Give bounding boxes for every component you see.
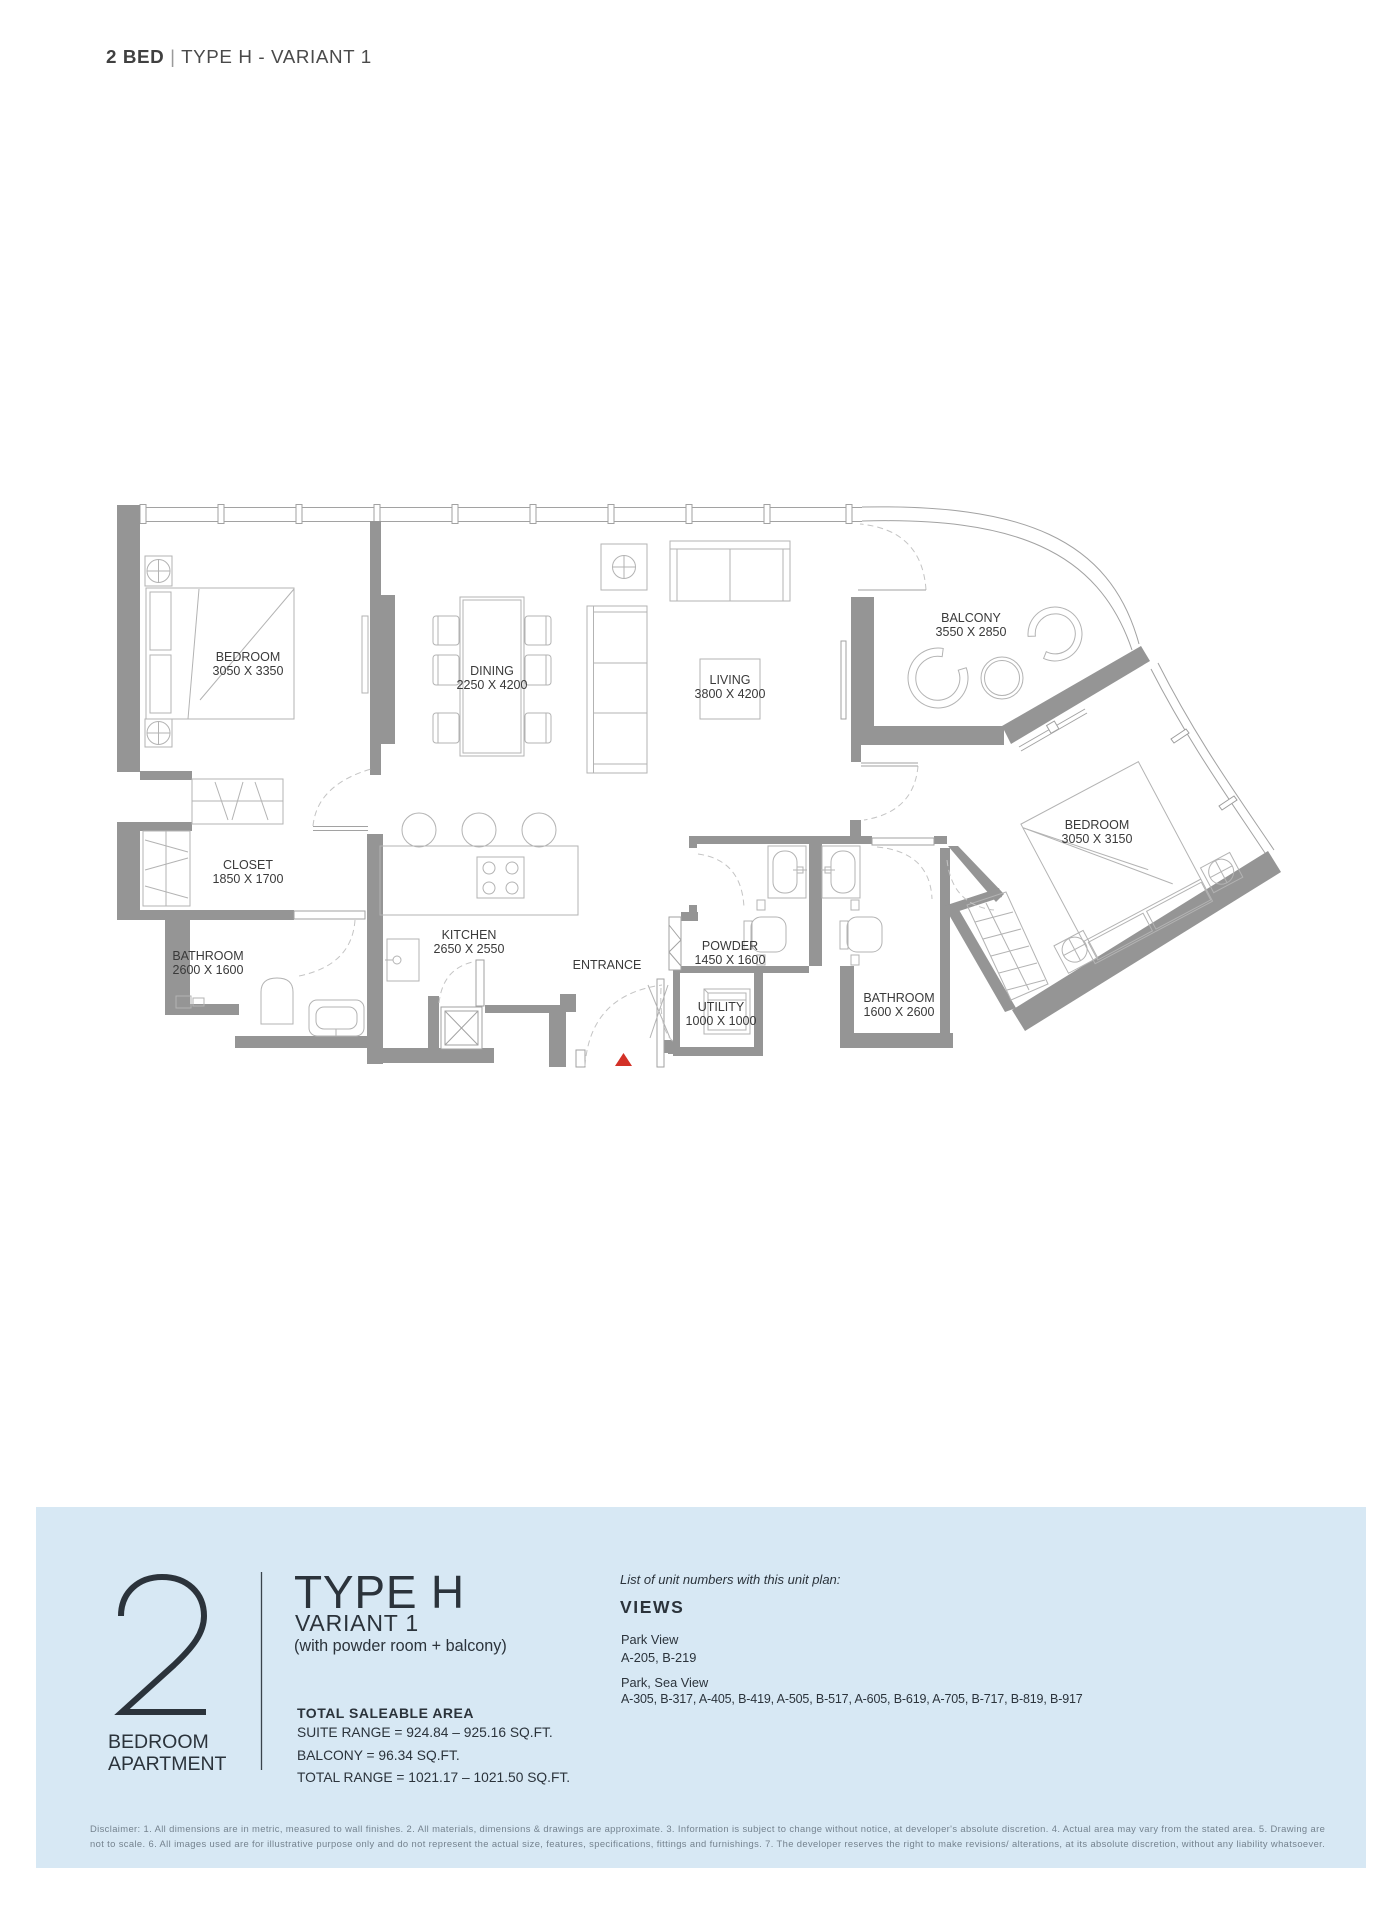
svg-text:VIEWS: VIEWS bbox=[620, 1597, 684, 1617]
svg-text:BALCONY = 96.34 SQ.FT.: BALCONY = 96.34 SQ.FT. bbox=[297, 1748, 460, 1763]
svg-text:3550 X 2850: 3550 X 2850 bbox=[936, 625, 1007, 639]
svg-text:List of unit numbers with this: List of unit numbers with this unit plan… bbox=[620, 1572, 841, 1587]
svg-text:UTILITY: UTILITY bbox=[698, 1000, 745, 1014]
svg-text:Disclaimer: 1. All dimensions: Disclaimer: 1. All dimensions are in met… bbox=[90, 1823, 1325, 1834]
svg-text:LIVING: LIVING bbox=[710, 673, 751, 687]
svg-text:1600 X 2600: 1600 X 2600 bbox=[864, 1005, 935, 1019]
svg-text:Park View: Park View bbox=[621, 1632, 679, 1647]
svg-text:BATHROOM: BATHROOM bbox=[172, 949, 243, 963]
svg-text:A-205, B-219: A-205, B-219 bbox=[621, 1650, 696, 1665]
svg-text:(with powder room + balcony): (with powder room + balcony) bbox=[294, 1637, 507, 1655]
svg-text:3800 X 4200: 3800 X 4200 bbox=[695, 687, 766, 701]
svg-text:ENTRANCE: ENTRANCE bbox=[573, 958, 642, 972]
svg-text:TOTAL SALEABLE AREA: TOTAL SALEABLE AREA bbox=[297, 1705, 474, 1721]
svg-text:BEDROOM: BEDROOM bbox=[216, 650, 281, 664]
svg-text:2650 X 2550: 2650 X 2550 bbox=[434, 942, 505, 956]
svg-text:3050 X 3350: 3050 X 3350 bbox=[213, 664, 284, 678]
svg-text:TOTAL RANGE = 1021.17 – 1021.5: TOTAL RANGE = 1021.17 – 1021.50 SQ.FT. bbox=[297, 1770, 570, 1785]
svg-text:not to scale. 6. All images us: not to scale. 6. All images used are for… bbox=[90, 1838, 1325, 1849]
svg-text:BEDROOM: BEDROOM bbox=[108, 1731, 209, 1753]
svg-text:VARIANT 1: VARIANT 1 bbox=[295, 1610, 419, 1636]
svg-text:POWDER: POWDER bbox=[702, 939, 758, 953]
svg-text:KITCHEN: KITCHEN bbox=[442, 928, 497, 942]
svg-text:3050 X 3150: 3050 X 3150 bbox=[1062, 832, 1133, 846]
svg-text:SUITE RANGE = 924.84 – 925.16: SUITE RANGE = 924.84 – 925.16 SQ.FT. bbox=[297, 1725, 553, 1740]
svg-text:1850 X 1700: 1850 X 1700 bbox=[213, 872, 284, 886]
svg-text:Park, Sea View: Park, Sea View bbox=[621, 1675, 709, 1690]
svg-text:2 BED | TYPE H - VARIANT 1: 2 BED | TYPE H - VARIANT 1 bbox=[106, 46, 372, 67]
svg-text:2250 X 4200: 2250 X 4200 bbox=[457, 678, 528, 692]
svg-text:BALCONY: BALCONY bbox=[941, 611, 1001, 625]
svg-text:A-305, B-317, A-405, B-419, A-: A-305, B-317, A-405, B-419, A-505, B-517… bbox=[621, 1692, 1083, 1706]
svg-text:1450 X 1600: 1450 X 1600 bbox=[695, 953, 766, 967]
svg-text:DINING: DINING bbox=[470, 664, 514, 678]
svg-text:BEDROOM: BEDROOM bbox=[1065, 818, 1130, 832]
svg-text:CLOSET: CLOSET bbox=[223, 858, 273, 872]
svg-text:2600 X 1600: 2600 X 1600 bbox=[173, 963, 244, 977]
svg-text:APARTMENT: APARTMENT bbox=[108, 1753, 227, 1775]
svg-text:BATHROOM: BATHROOM bbox=[863, 991, 934, 1005]
svg-text:1000 X 1000: 1000 X 1000 bbox=[686, 1014, 757, 1028]
